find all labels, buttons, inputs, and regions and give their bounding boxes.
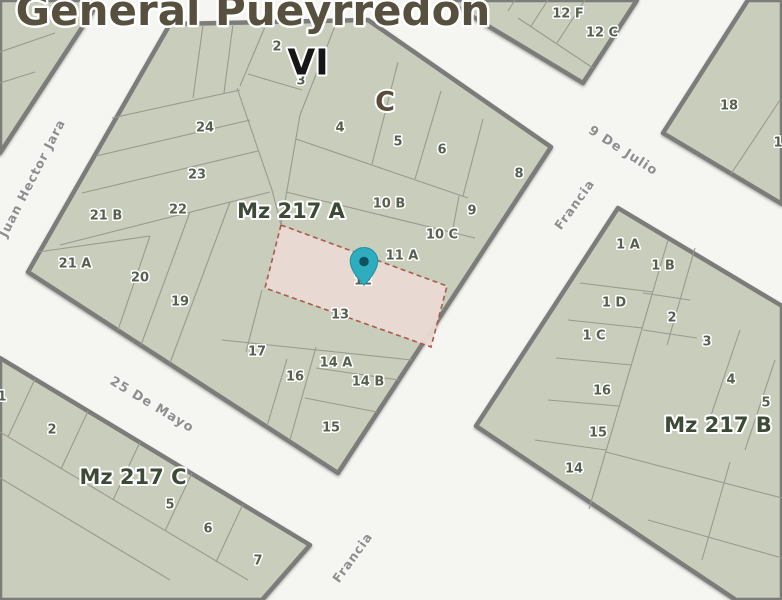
cadastral-map-canvas[interactable]: 2 3 4 5 6 8 24 23 22 10 B 9 10 C 11 A 21… [0,0,782,600]
parcel-label: 15 [589,426,607,441]
parcel-label: 6 [437,143,446,158]
parcel-label: 3 [702,335,711,350]
parcel-label: 6 [203,522,212,537]
map-title: General Pueyrredon [16,0,491,35]
parcel-label: 4 [335,121,344,136]
block-name-mz-217-a: Mz 217 A [237,199,346,223]
parcel-label: 20 [131,271,149,286]
parcel-label: 1 [773,136,782,151]
section-code-label: C [375,87,395,118]
parcel-label: 2 [47,423,56,438]
parcel-label: 8 [514,167,523,182]
parcel-label: 4 [726,373,735,388]
parcel-label: 18 [720,99,738,114]
parcel-label: 1 D [602,296,627,311]
block-name-mz-217-c: Mz 217 C [80,465,187,489]
parcel-label: 16 [286,370,304,385]
parcel-label: 12 C [586,26,618,41]
parcel-label: 1 B [651,259,674,274]
parcel-label: 5 [165,498,174,513]
zone-code-label: VI [287,43,328,84]
parcel-label: 9 [467,204,476,219]
parcel-label: 10 B [373,197,406,212]
parcel-label: 19 [171,295,189,310]
parcel-label: 2 [667,311,676,326]
parcel-label: 24 [196,121,214,136]
parcel-label: 5 [761,396,770,411]
parcel-label: 1 [0,390,7,405]
parcel-label: 22 [169,203,187,218]
parcel-label: 14 A [320,356,353,371]
parcel-label: 21 B [90,209,123,224]
parcel-label: 12 F [552,7,584,22]
parcel-label: 16 [593,384,611,399]
block-name-mz-217-b: Mz 217 B [664,413,772,437]
parcel-label: 7 [253,554,262,569]
parcel-label: 1 C [582,329,605,344]
parcel-label: 13 [331,308,349,323]
parcel-label: 15 [322,421,340,436]
parcel-label: 21 A [59,257,92,272]
parcel-label: 23 [188,168,206,183]
parcel-label: 5 [393,135,402,150]
map-viewport[interactable]: 2 3 4 5 6 8 24 23 22 10 B 9 10 C 11 A 21… [0,0,782,600]
parcel-label: 1 A [616,238,640,253]
pin-center-dot [359,257,369,267]
parcel-label: 14 [565,462,583,477]
parcel-label: 17 [248,345,266,360]
parcel-label: 10 C [426,228,458,243]
parcel-label: 14 B [352,375,385,390]
parcel-label: 11 A [386,249,419,264]
parcel-label: 2 [272,40,281,55]
